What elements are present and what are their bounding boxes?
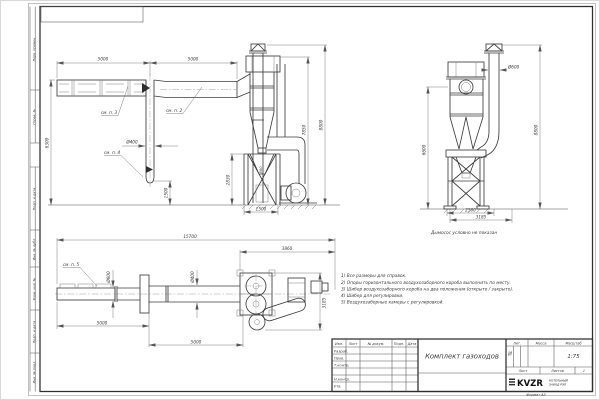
callout-2: см. п. 2 bbox=[166, 108, 183, 113]
col-podp: Подп. bbox=[394, 342, 404, 346]
dim-segment-1: 5000 bbox=[97, 321, 108, 326]
dim-duct-diameter-1: Ø600 bbox=[106, 271, 111, 284]
col-izm: Изм. bbox=[335, 342, 343, 346]
dim-height: 6300 bbox=[45, 137, 50, 148]
margin-label: Подп. и дата bbox=[33, 188, 37, 210]
note-line: 1) Все размеры для справок. bbox=[341, 273, 406, 279]
dim-chimney-diameter: Ø600 bbox=[507, 65, 520, 70]
lit-label: Лит. bbox=[512, 342, 521, 346]
role-nkontr: Н.контр. bbox=[334, 377, 350, 381]
lit-value: И bbox=[508, 352, 512, 358]
mass-label: Масса bbox=[536, 342, 547, 346]
margin-label: Справ. № bbox=[33, 108, 37, 125]
view-note: Дымосос условно не показан bbox=[430, 230, 497, 236]
dim-total-length: 15700 bbox=[183, 234, 197, 239]
margin-label: Подп. и дата bbox=[33, 321, 37, 343]
dim-depth: 3185 bbox=[322, 297, 327, 308]
scale-label: Масштаб bbox=[565, 342, 581, 346]
dim-segment-2: 5000 bbox=[191, 340, 202, 345]
dim-duct-diameter-2: Ø400 bbox=[190, 271, 195, 284]
sheets-label: Листов bbox=[550, 369, 564, 373]
dim-cyclone-height: 6600 bbox=[422, 144, 427, 155]
dim-length-2: 5000 bbox=[188, 57, 199, 62]
margin-label: Инв. № дубл. bbox=[33, 238, 37, 261]
col-docnum: № докум. bbox=[367, 342, 385, 346]
note-line: 2) Опоры горизонтального воздухозаборног… bbox=[341, 280, 511, 286]
margin-label: Взам. инв. № bbox=[33, 277, 37, 300]
dim-pipe-diameter: Ø400 bbox=[125, 140, 138, 145]
dim-gap: 500 bbox=[258, 166, 263, 174]
document-title: Комплект газоходов bbox=[425, 353, 499, 361]
dim-bin-width: 1500 bbox=[256, 207, 267, 212]
note-line: 5) Воздухозаборные камеры с регулировкой… bbox=[341, 300, 444, 306]
callout-3: см. п. 3 bbox=[101, 110, 118, 115]
dim-length-1: 5000 bbox=[98, 57, 109, 62]
dim-pipe-length: 1500 bbox=[164, 187, 169, 198]
col-list: Лист bbox=[348, 342, 359, 346]
sheet-label: Лист bbox=[518, 369, 529, 373]
role-razrab: Разраб. bbox=[334, 349, 348, 353]
margin-label: Инв. № подл. bbox=[33, 361, 37, 384]
dim-base-total: 3185 bbox=[476, 215, 487, 220]
dim-bin-height: 2830 bbox=[226, 174, 231, 185]
dim-right-length: 3860 bbox=[282, 246, 293, 251]
company-name-line2: ЗАВОД РЭП bbox=[549, 383, 567, 387]
note-line: 3) Шибер воздухозаборного короба на два … bbox=[341, 287, 513, 293]
role-utv: Утв. bbox=[334, 384, 342, 388]
logo-text: KVZR bbox=[517, 379, 543, 389]
sheet-frame bbox=[1, 1, 600, 400]
margin-label: Перв. примен. bbox=[33, 37, 37, 62]
callout-4: см. п. 4 bbox=[104, 150, 121, 155]
sheets-value: 1 bbox=[583, 369, 585, 373]
drawing-sheet: Перв. примен. Справ. № Подп. и дата Инв.… bbox=[0, 0, 600, 400]
dim-base-width: 2560 bbox=[465, 208, 476, 213]
role-tkontr: Т.контр. bbox=[334, 363, 350, 367]
note-line: 4) Шибер для регулировки. bbox=[341, 293, 404, 299]
dim-inner-height: 7850 bbox=[302, 124, 307, 135]
dim-total-height: 8800 bbox=[534, 124, 539, 135]
col-data: Дата bbox=[407, 342, 417, 346]
format-note: Формат А3 bbox=[526, 393, 545, 397]
role-prov: Пров. bbox=[334, 356, 344, 360]
callout-5: см. п. 5 bbox=[63, 262, 80, 267]
scale-value: 1:75 bbox=[567, 354, 580, 360]
dim-total-height: 8800 bbox=[319, 119, 324, 130]
